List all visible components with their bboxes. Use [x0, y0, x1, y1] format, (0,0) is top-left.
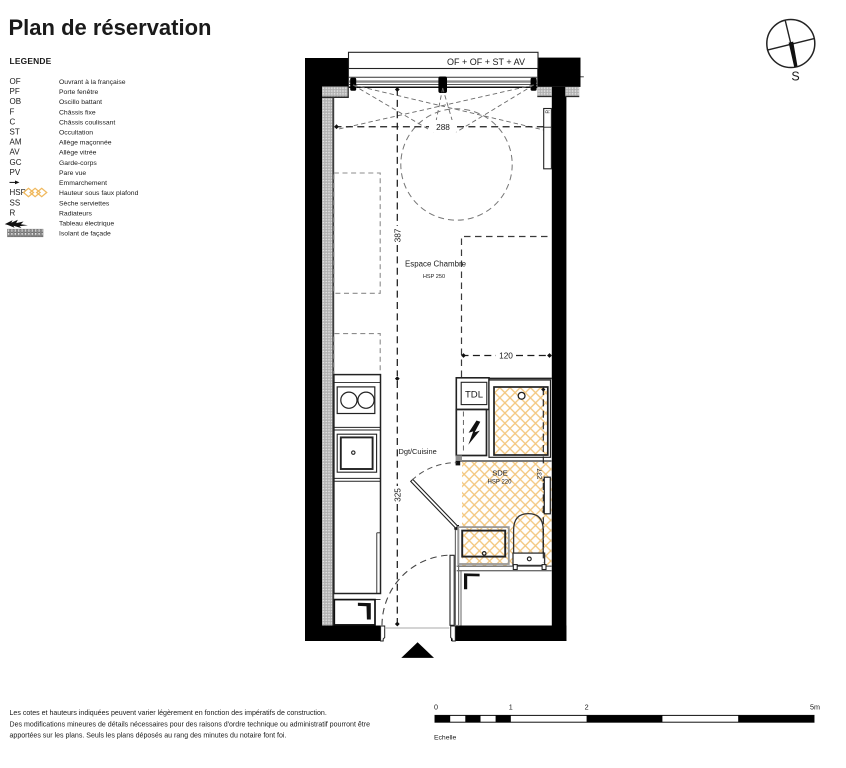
svg-text:F: F: [10, 107, 15, 116]
svg-text:Porte fenêtre: Porte fenêtre: [59, 89, 99, 96]
svg-text:237: 237: [537, 468, 544, 479]
svg-text:120: 120: [499, 351, 513, 361]
svg-text:Ouvrant à la française: Ouvrant à la française: [59, 79, 126, 86]
svg-text:5m: 5m: [810, 703, 820, 712]
svg-text:Espace Chambre: Espace Chambre: [405, 260, 467, 269]
svg-text:Tableau électrique: Tableau électrique: [59, 221, 114, 228]
svg-text:LEGENDE: LEGENDE: [10, 56, 52, 66]
svg-text:325: 325: [392, 488, 402, 502]
svg-text:R: R: [10, 209, 16, 218]
svg-text:AV: AV: [10, 148, 21, 157]
svg-text:0: 0: [434, 703, 438, 712]
svg-text:Garde-corps: Garde-corps: [59, 160, 97, 167]
svg-text:PF: PF: [10, 87, 20, 96]
svg-text:Emmarchement: Emmarchement: [59, 180, 107, 187]
svg-text:S: S: [791, 70, 799, 84]
svg-text:288: 288: [436, 122, 450, 132]
svg-text:Pare vue: Pare vue: [59, 170, 86, 177]
svg-text:Isolant de façade: Isolant de façade: [59, 231, 111, 238]
svg-text:Châssis coulissant: Châssis coulissant: [59, 119, 115, 126]
svg-text:Plan de réservation: Plan de réservation: [9, 15, 212, 40]
svg-text:Radiateurs: Radiateurs: [59, 211, 92, 218]
svg-text:apportées sur les plans. Seuls: apportées sur les plans. Seuls les plans…: [10, 733, 287, 740]
svg-text:HSP 250: HSP 250: [423, 274, 445, 280]
svg-text:GC: GC: [10, 158, 22, 167]
svg-text:Oscillo battant: Oscillo battant: [59, 99, 102, 106]
svg-text:387: 387: [392, 228, 402, 242]
svg-text:PV: PV: [10, 168, 21, 177]
svg-text:OB: OB: [10, 97, 22, 106]
svg-text:1: 1: [509, 703, 513, 712]
svg-text:Echelle: Echelle: [434, 735, 457, 742]
svg-text:Allège vitrée: Allège vitrée: [59, 150, 97, 157]
svg-text:OF: OF: [10, 77, 21, 86]
svg-text:HSP 220: HSP 220: [488, 479, 513, 485]
svg-text:Dgt/Cuisine: Dgt/Cuisine: [399, 447, 437, 456]
svg-text:Châssis fixe: Châssis fixe: [59, 109, 96, 116]
svg-text:Occultation: Occultation: [59, 130, 93, 137]
svg-text:Hauteur sous faux plafond: Hauteur sous faux plafond: [59, 190, 139, 197]
svg-text:AM: AM: [10, 138, 22, 147]
svg-text:Les cotes et hauteurs indiquée: Les cotes et hauteurs indiquées peuvent …: [10, 710, 327, 717]
svg-text:2: 2: [585, 703, 589, 712]
svg-text:Des modifications mineures de: Des modifications mineures de détails né…: [10, 721, 371, 728]
svg-text:ST: ST: [10, 128, 20, 137]
svg-text:R: R: [546, 110, 552, 114]
svg-text:SS: SS: [10, 198, 21, 207]
svg-text:Sèche serviettes: Sèche serviettes: [59, 200, 110, 207]
svg-text:TDL: TDL: [465, 390, 484, 401]
svg-text:C: C: [10, 117, 16, 126]
svg-text:Allège maçonnée: Allège maçonnée: [59, 140, 112, 147]
svg-text:SDE: SDE: [492, 468, 508, 477]
svg-text:OF + OF + ST + AV: OF + OF + ST + AV: [447, 57, 525, 67]
